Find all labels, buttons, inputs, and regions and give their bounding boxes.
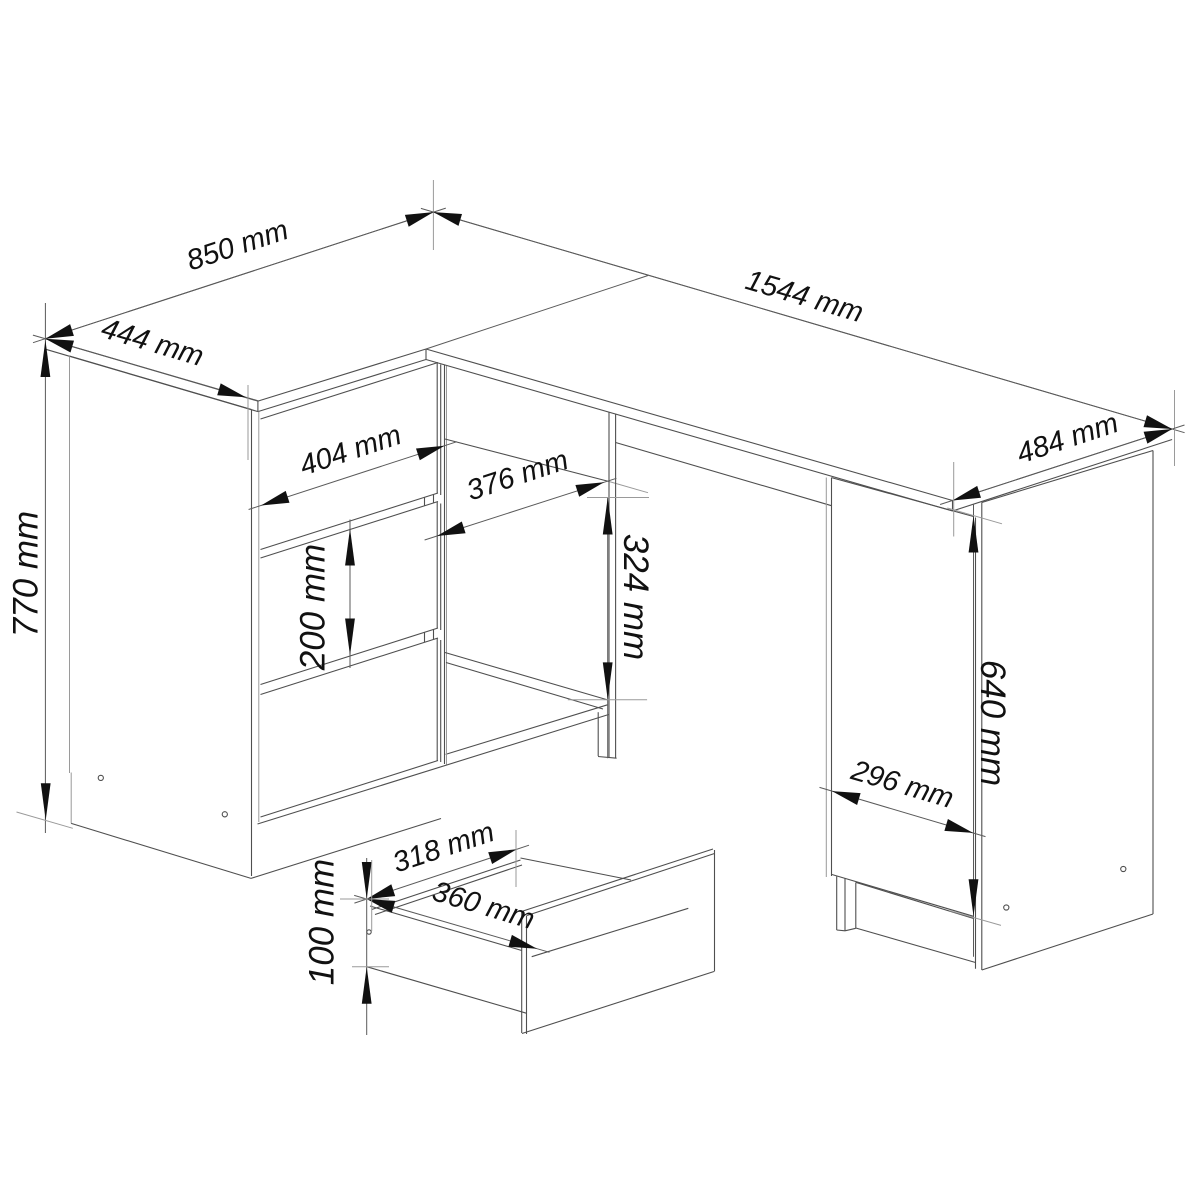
svg-text:324 mm: 324 mm <box>616 534 655 660</box>
svg-text:200 mm: 200 mm <box>293 544 332 671</box>
svg-text:100 mm: 100 mm <box>302 859 341 985</box>
svg-text:640 mm: 640 mm <box>973 660 1012 786</box>
svg-text:770 mm: 770 mm <box>6 511 45 637</box>
